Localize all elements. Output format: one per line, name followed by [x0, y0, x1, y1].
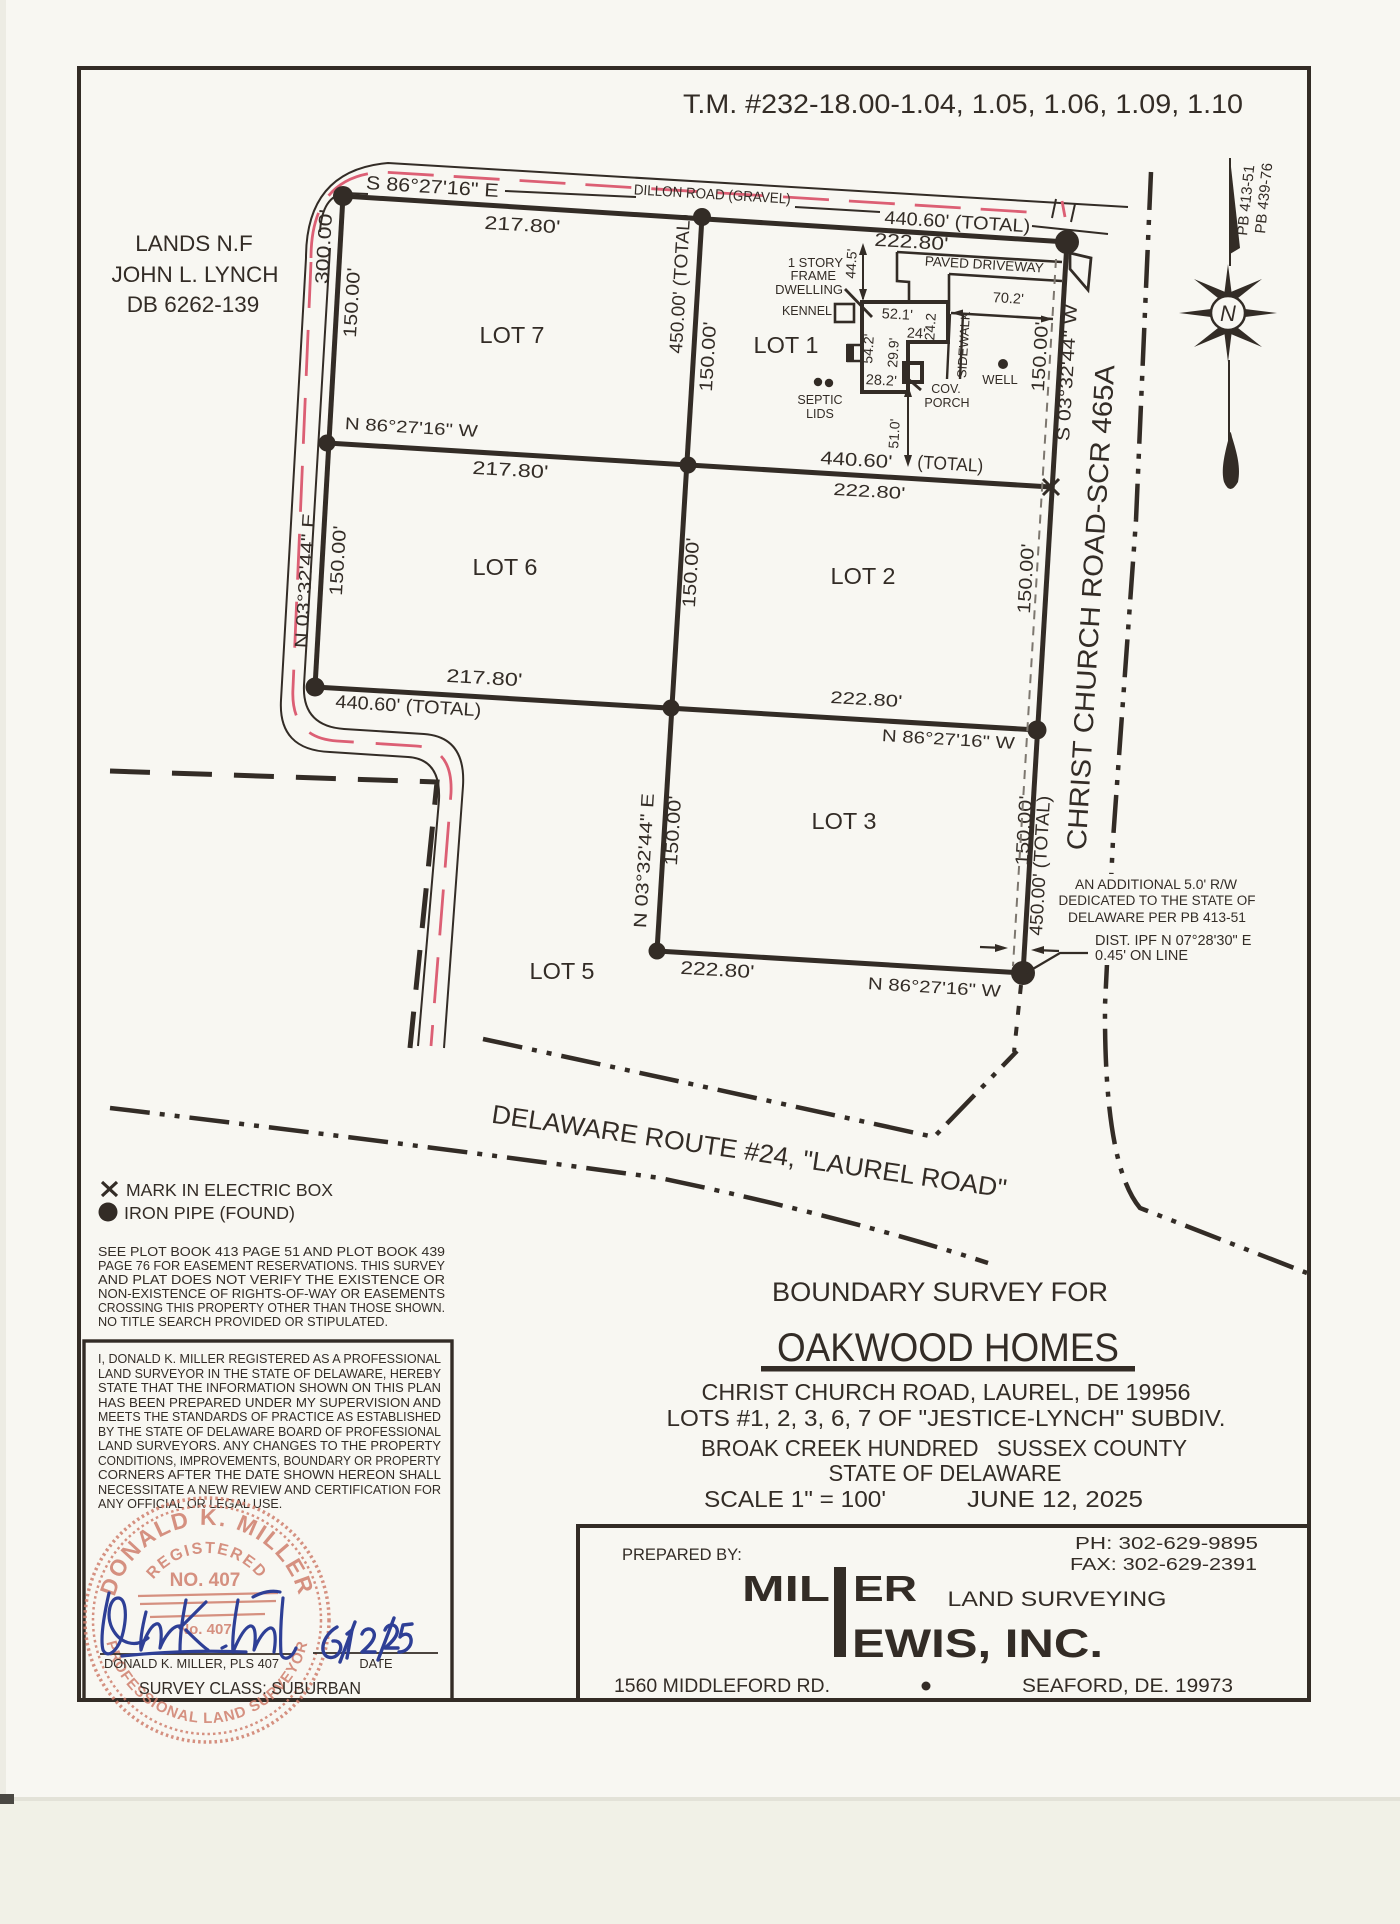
svg-text:PREPARED BY:: PREPARED BY: — [622, 1546, 742, 1564]
svg-text:AN ADDITIONAL 5.0' R/W: AN ADDITIONAL 5.0' R/W — [1075, 877, 1237, 892]
svg-text:SCALE 1" = 100': SCALE 1" = 100' — [704, 1486, 886, 1512]
svg-text:SEE PLOT BOOK 413 PAGE 51 AND: SEE PLOT BOOK 413 PAGE 51 AND PLOT BOOK … — [98, 1245, 445, 1259]
svg-text:44.5': 44.5' — [842, 248, 860, 279]
svg-text:CROSSING THIS PROPERTY OTHER T: CROSSING THIS PROPERTY OTHER THAN THOSE … — [98, 1301, 445, 1315]
svg-text:24.2: 24.2 — [921, 312, 939, 340]
svg-text:LIDS: LIDS — [806, 407, 834, 421]
svg-text:NO TITLE SEARCH PROVIDED OR ST: NO TITLE SEARCH PROVIDED OR STIPULATED. — [98, 1315, 388, 1329]
svg-text:SEAFORD, DE. 19973: SEAFORD, DE. 19973 — [1022, 1676, 1233, 1697]
svg-text:51.0': 51.0' — [885, 418, 903, 449]
svg-text:IRON PIPE (FOUND): IRON PIPE (FOUND) — [124, 1203, 295, 1223]
svg-text:SURVEY CLASS: SUBURBAN: SURVEY CLASS: SUBURBAN — [139, 1678, 361, 1698]
svg-text:150.00': 150.00' — [1027, 321, 1052, 392]
svg-text:150.00': 150.00' — [678, 537, 703, 608]
svg-text:EWIS, INC.: EWIS, INC. — [852, 1622, 1103, 1666]
svg-text:CHRIST CHURCH ROAD, LAUREL, DE: CHRIST CHURCH ROAD, LAUREL, DE 19956 — [702, 1379, 1191, 1405]
svg-text:300.00': 300.00' — [311, 209, 336, 285]
svg-text:1560 MIDDLEFORD RD.: 1560 MIDDLEFORD RD. — [614, 1676, 830, 1697]
svg-text:PAGE 76 FOR EASEMENT RESERVATI: PAGE 76 FOR EASEMENT RESERVATIONS. THIS … — [98, 1259, 446, 1273]
svg-text:COV.: COV. — [931, 382, 960, 396]
svg-text:BOUNDARY SURVEY FOR: BOUNDARY SURVEY FOR — [772, 1277, 1108, 1307]
svg-text:DELAWARE PER PB 413-51: DELAWARE PER PB 413-51 — [1068, 910, 1246, 925]
svg-text:BROAK CREEK HUNDRED SUSSEX C: BROAK CREEK HUNDRED SUSSEX COUNTY — [701, 1435, 1187, 1461]
svg-text:BY THE STATE OF DELAWARE BOARD: BY THE STATE OF DELAWARE BOARD OF PROFES… — [98, 1425, 441, 1439]
svg-text:LANDS N.F: LANDS N.F — [135, 231, 253, 256]
svg-text:150.00': 150.00' — [325, 525, 350, 596]
svg-text:PORCH: PORCH — [924, 396, 969, 410]
svg-text:MARK IN ELECTRIC BOX: MARK IN ELECTRIC BOX — [126, 1180, 333, 1200]
svg-text:52.1': 52.1' — [881, 306, 913, 324]
svg-text:NON-EXISTENCE OF RIGHTS-OF-WAY: NON-EXISTENCE OF RIGHTS-OF-WAY OR EASEME… — [98, 1287, 445, 1301]
svg-text:150.00': 150.00' — [339, 267, 364, 338]
svg-text:0.45' ON LINE: 0.45' ON LINE — [1095, 948, 1188, 964]
svg-text:217.80': 217.80' — [484, 212, 561, 237]
svg-text:JUNE 12, 2025: JUNE 12, 2025 — [967, 1486, 1143, 1512]
svg-text:217.80': 217.80' — [446, 665, 523, 690]
svg-text:222.80': 222.80' — [874, 229, 949, 254]
svg-text:STATE OF DELAWARE: STATE OF DELAWARE — [829, 1460, 1062, 1486]
svg-text:440.60': 440.60' — [820, 447, 893, 472]
svg-text:54.2': 54.2' — [859, 333, 877, 364]
svg-text:NECESSITATE A NEW REVIEW AND C: NECESSITATE A NEW REVIEW AND CERTIFICATI… — [98, 1483, 441, 1497]
svg-text:PH: 302-629-9895: PH: 302-629-9895 — [1075, 1533, 1258, 1553]
svg-text:FAX: 302-629-2391: FAX: 302-629-2391 — [1070, 1554, 1257, 1574]
svg-text:70.2': 70.2' — [992, 290, 1024, 308]
svg-text:MIL: MIL — [742, 1568, 830, 1609]
svg-text:DIST. IPF N 07°28'30" E: DIST. IPF N 07°28'30" E — [1095, 933, 1252, 949]
svg-text:150.00': 150.00' — [1013, 543, 1038, 614]
svg-text:CONDITIONS, IMPROVEMENTS, BOUN: CONDITIONS, IMPROVEMENTS, BOUNDARY OR PR… — [98, 1454, 442, 1468]
svg-text:T.M. #232-18.00-1.04, 1.05, 1.: T.M. #232-18.00-1.04, 1.05, 1.06, 1.09, … — [683, 89, 1243, 119]
svg-text:STATE THAT THE INFORMATION SHO: STATE THAT THE INFORMATION SHOWN ON THIS… — [98, 1381, 441, 1395]
svg-text:DONALD K. MILLER, PLS 407: DONALD K. MILLER, PLS 407 — [104, 1656, 279, 1671]
svg-text:KENNEL: KENNEL — [782, 304, 832, 318]
svg-text:DWELLING: DWELLING — [775, 282, 843, 297]
svg-text:222.80': 222.80' — [680, 957, 755, 982]
svg-text:28.2': 28.2' — [865, 372, 897, 390]
svg-text:CORNERS AFTER THE DATE SHOWN H: CORNERS AFTER THE DATE SHOWN HEREON SHAL… — [98, 1468, 441, 1482]
svg-text:150.00': 150.00' — [660, 795, 685, 866]
svg-text:LOT 3: LOT 3 — [812, 808, 877, 834]
svg-text:LAND SURVEYORS. ANY CHANGES T: LAND SURVEYORS. ANY CHANGES TO THE PROPE… — [98, 1439, 442, 1453]
svg-text:OAKWOOD HOMES: OAKWOOD HOMES — [777, 1326, 1119, 1370]
svg-text:LOT 6: LOT 6 — [473, 554, 538, 580]
svg-text:LAND SURVEYING: LAND SURVEYING — [948, 1587, 1167, 1611]
svg-text:DB 6262-139: DB 6262-139 — [127, 292, 260, 317]
svg-text:WELL: WELL — [982, 372, 1017, 387]
svg-text:DEDICATED TO THE STATE OF: DEDICATED TO THE STATE OF — [1059, 893, 1256, 908]
svg-text:I, DONALD K. MILLER REGISTERED: I, DONALD K. MILLER REGISTERED AS A PROF… — [98, 1352, 441, 1366]
svg-text:LOT 2: LOT 2 — [831, 563, 896, 589]
svg-text:29.9': 29.9' — [884, 337, 902, 368]
svg-text:JOHN L. LYNCH: JOHN L. LYNCH — [111, 262, 278, 287]
svg-text:AND PLAT DOES NOT VERIFY THE E: AND PLAT DOES NOT VERIFY THE EXISTENCE O… — [98, 1273, 445, 1287]
svg-text:LOT 7: LOT 7 — [480, 322, 545, 348]
svg-text:ER: ER — [853, 1568, 917, 1609]
svg-text:LAND SURVEYOR IN THE STATE OF: LAND SURVEYOR IN THE STATE OF DELAWARE, … — [98, 1367, 442, 1381]
svg-text:LOT 5: LOT 5 — [530, 958, 595, 984]
svg-text:FRAME: FRAME — [791, 268, 837, 283]
svg-text:LOT 1: LOT 1 — [754, 332, 819, 358]
svg-text:(TOTAL): (TOTAL) — [917, 451, 984, 476]
svg-text:LOTS #1, 2, 3, 6, 7 OF "JESTIC: LOTS #1, 2, 3, 6, 7 OF "JESTICE-LYNCH" S… — [667, 1405, 1226, 1431]
svg-text:MEETS THE STANDARDS OF PRACTIC: MEETS THE STANDARDS OF PRACTICE AS ESTAB… — [98, 1410, 441, 1424]
svg-text:150.00': 150.00' — [695, 321, 720, 392]
svg-text:NO. 407: NO. 407 — [170, 1570, 241, 1591]
svg-text:HAS BEEN PREPARED UNDER MY SUP: HAS BEEN PREPARED UNDER MY SUPERVISION A… — [98, 1396, 441, 1410]
svg-text:217.80': 217.80' — [472, 457, 549, 482]
svg-text:SEPTIC: SEPTIC — [797, 393, 842, 407]
svg-text:DATE: DATE — [359, 1656, 392, 1671]
svg-text:N: N — [1220, 301, 1236, 326]
